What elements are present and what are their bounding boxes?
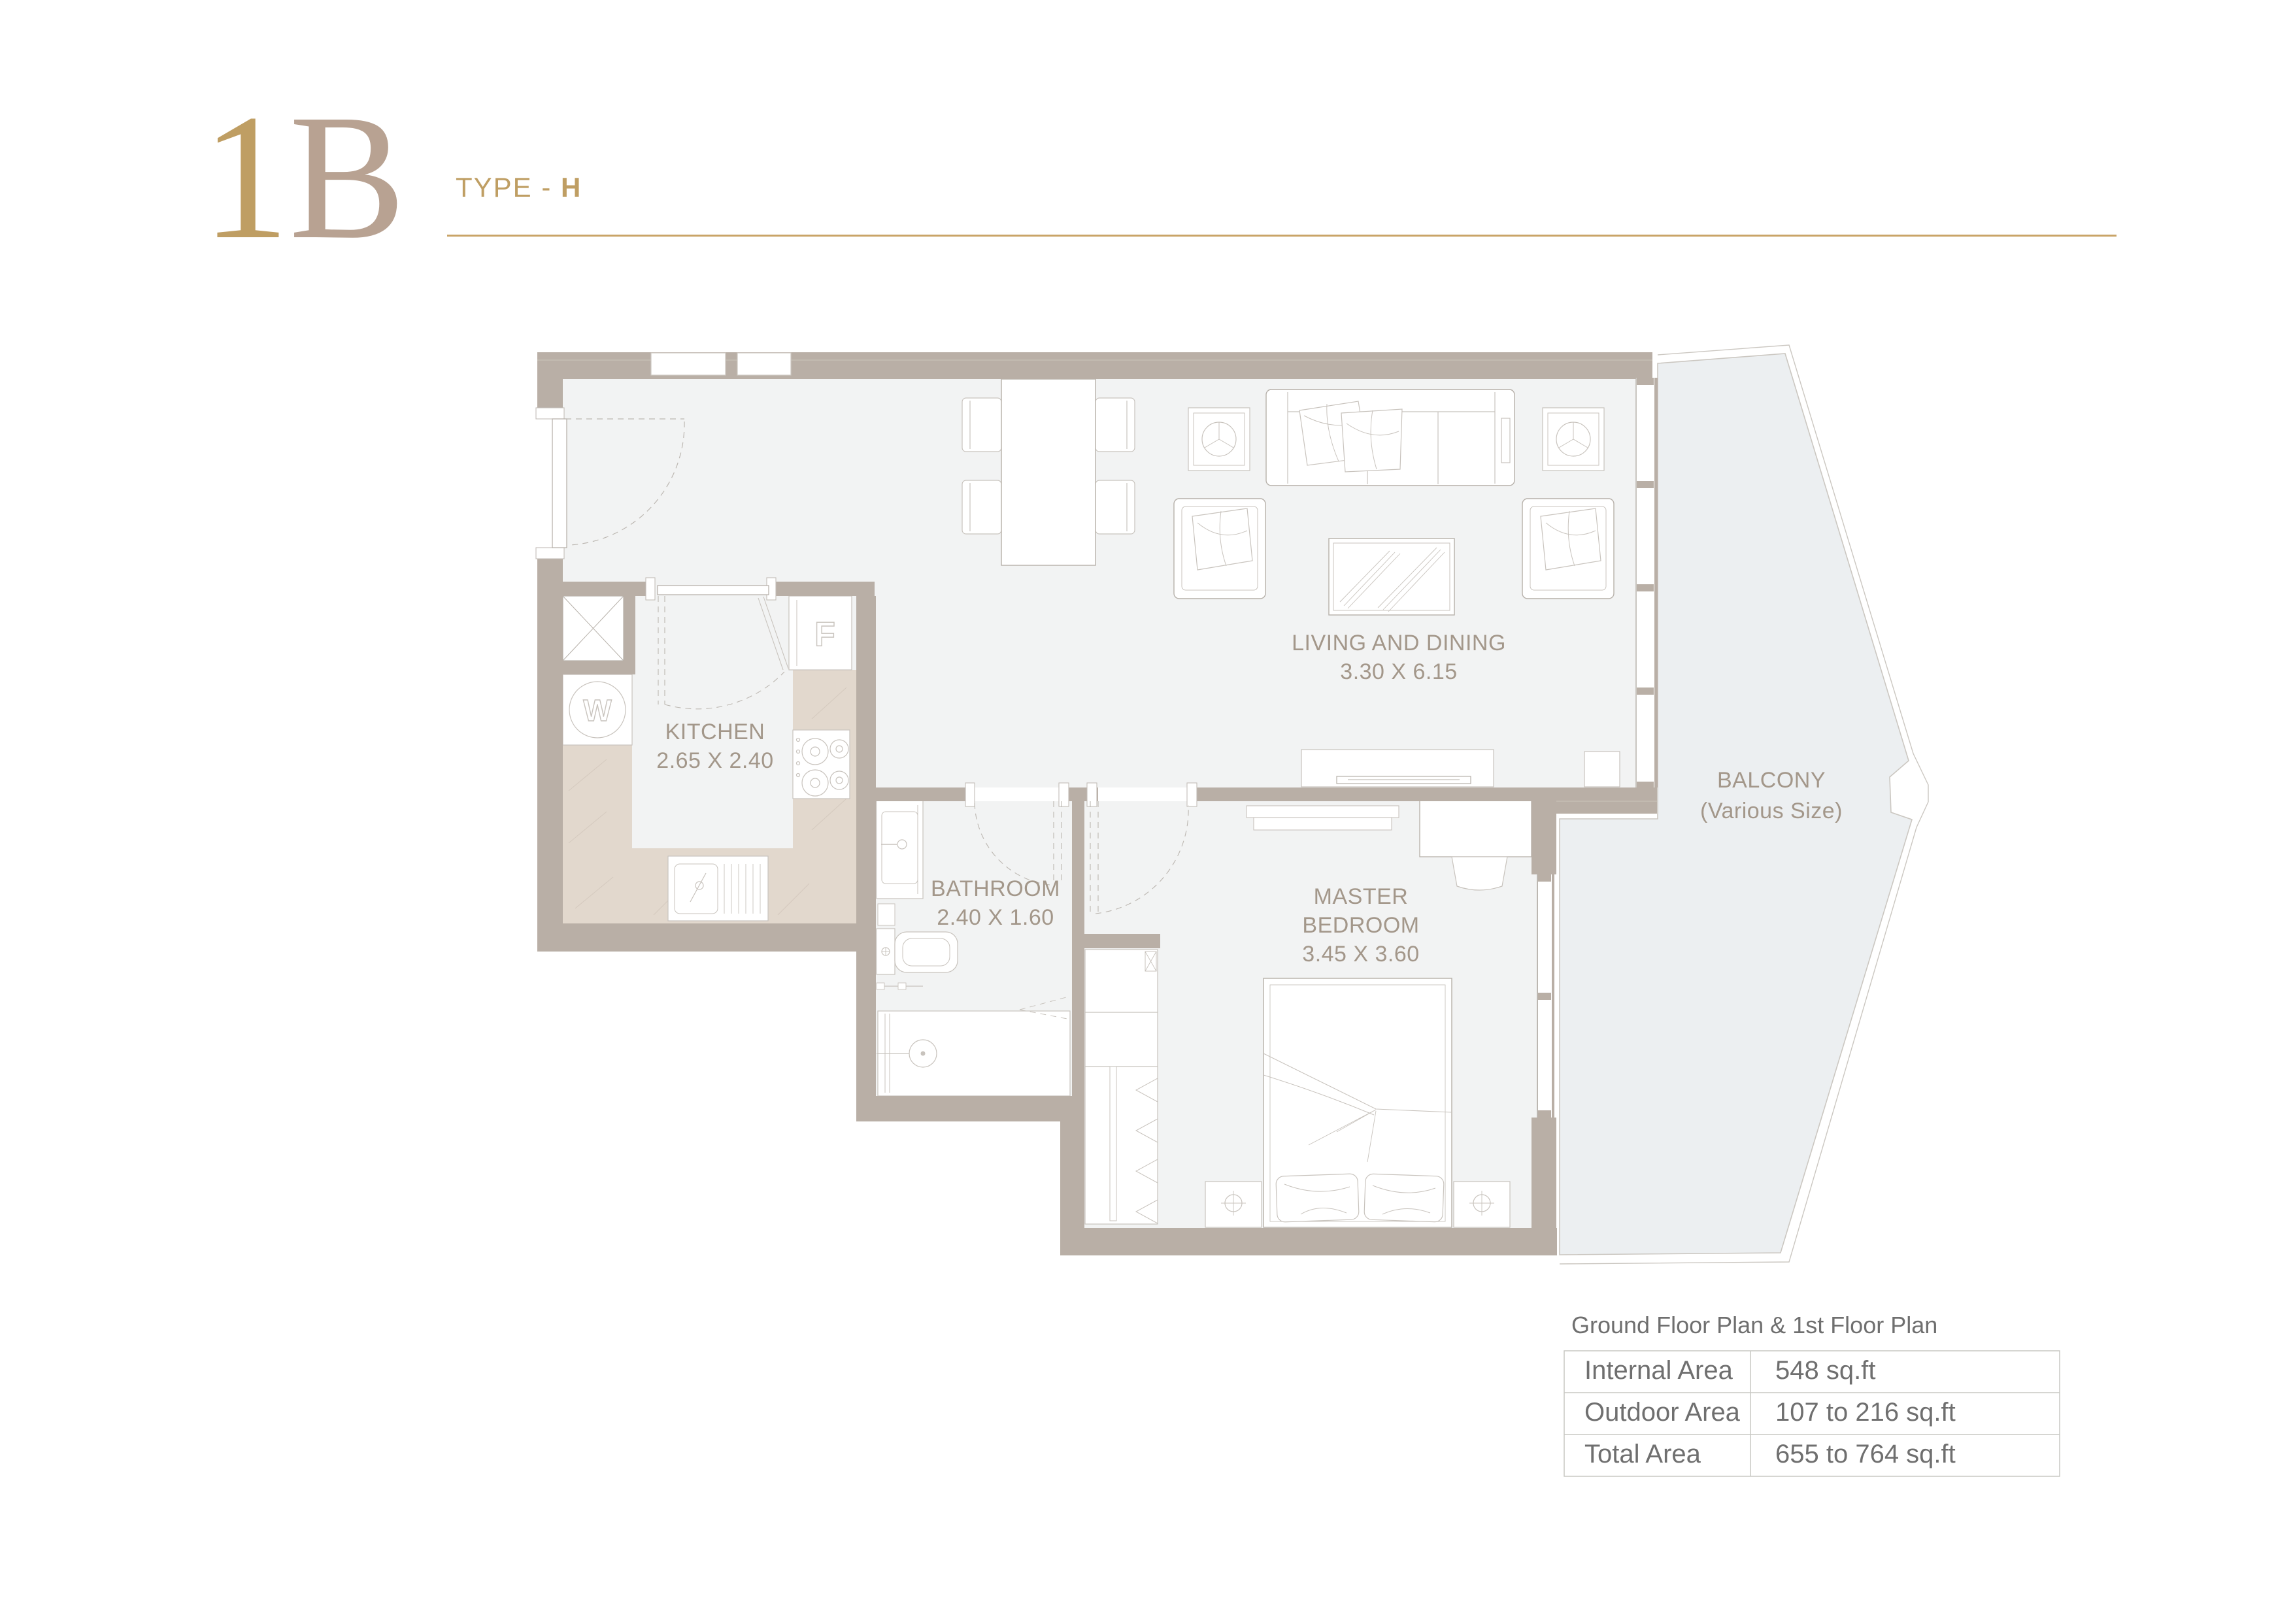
svg-text:BATHROOM: BATHROOM — [931, 876, 1060, 901]
svg-text:107 to 216 sq.ft: 107 to 216 sq.ft — [1775, 1398, 1956, 1427]
svg-text:Internal Area: Internal Area — [1584, 1356, 1733, 1385]
svg-text:(Various Size): (Various Size) — [1700, 799, 1843, 823]
svg-text:2.65 X 2.40: 2.65 X 2.40 — [656, 748, 773, 773]
svg-text:BEDROOM: BEDROOM — [1302, 913, 1419, 938]
svg-text:3.30 X 6.15: 3.30 X 6.15 — [1340, 659, 1457, 684]
svg-text:TYPE - H: TYPE - H — [456, 172, 582, 203]
svg-text:548 sq.ft: 548 sq.ft — [1775, 1356, 1875, 1385]
svg-text:3.45 X 3.60: 3.45 X 3.60 — [1302, 942, 1419, 967]
svg-text:W: W — [583, 693, 612, 727]
svg-text:2.40 X 1.60: 2.40 X 1.60 — [937, 905, 1054, 930]
svg-text:LIVING AND DINING: LIVING AND DINING — [1292, 631, 1506, 655]
svg-text:Total Area: Total Area — [1584, 1440, 1701, 1468]
svg-text:F: F — [814, 616, 835, 654]
svg-text:1B: 1B — [202, 77, 405, 276]
svg-text:655 to 764 sq.ft: 655 to 764 sq.ft — [1775, 1440, 1956, 1468]
svg-text:Ground Floor Plan & 1st Floor: Ground Floor Plan & 1st Floor Plan — [1571, 1312, 1937, 1338]
svg-text:Outdoor Area: Outdoor Area — [1584, 1398, 1741, 1427]
svg-text:BALCONY: BALCONY — [1717, 768, 1826, 793]
svg-text:KITCHEN: KITCHEN — [665, 720, 765, 744]
svg-text:MASTER: MASTER — [1314, 884, 1409, 909]
